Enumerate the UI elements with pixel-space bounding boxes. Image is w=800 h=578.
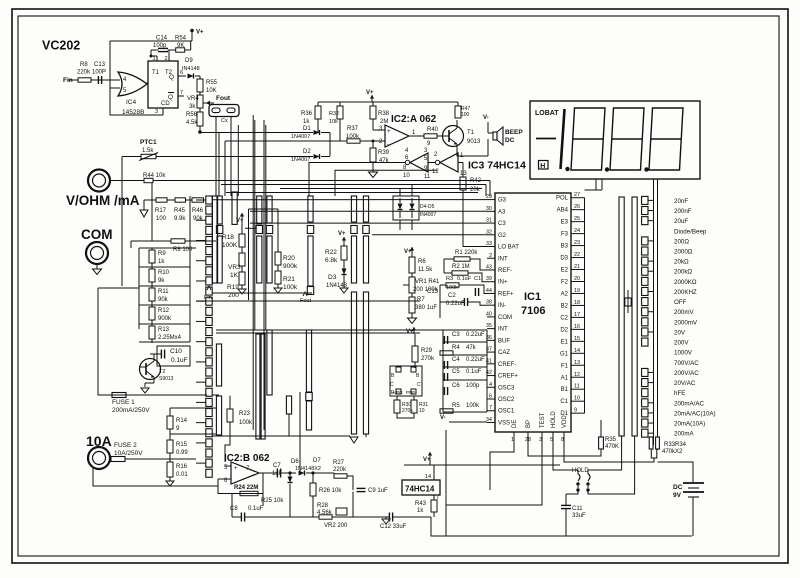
svg-text:100: 100 (461, 112, 470, 118)
svg-text:D9: D9 (185, 58, 193, 64)
svg-text:F2: F2 (561, 279, 569, 285)
svg-text:T1: T1 (467, 130, 475, 136)
svg-text:D3: D3 (328, 274, 337, 281)
svg-text:D3: D3 (560, 256, 568, 262)
svg-text:R27: R27 (333, 460, 345, 466)
svg-text:B3: B3 (561, 244, 569, 250)
svg-text:R19: R19 (227, 284, 239, 291)
svg-text:R7: R7 (417, 297, 425, 303)
svg-text:200mA/250V: 200mA/250V (112, 407, 150, 414)
svg-text:AB4: AB4 (557, 208, 569, 214)
svg-text:6.8k: 6.8k (325, 257, 338, 264)
svg-text:IC3 74HC14: IC3 74HC14 (468, 160, 526, 172)
svg-text:20: 20 (574, 276, 580, 282)
svg-text:hFE: hFE (674, 390, 685, 397)
svg-text:900k: 900k (283, 263, 298, 270)
svg-text:100p: 100p (466, 383, 480, 389)
svg-text:1: 1 (153, 56, 156, 62)
svg-text:1N4007: 1N4007 (291, 157, 310, 163)
svg-text:V+: V+ (404, 249, 412, 255)
svg-text:15: 15 (574, 336, 580, 342)
svg-text:IC2:A 062: IC2:A 062 (391, 114, 437, 125)
svg-text:220k: 220k (77, 70, 91, 76)
svg-text:R8: R8 (80, 62, 88, 68)
svg-text:A1: A1 (561, 375, 569, 381)
svg-text:R5: R5 (452, 403, 460, 409)
svg-text:R46: R46 (192, 208, 204, 214)
svg-text:REF+: REF+ (498, 291, 514, 297)
svg-text:1k: 1k (417, 508, 424, 514)
svg-text:9013: 9013 (467, 139, 481, 145)
svg-text:C8: C8 (230, 506, 238, 512)
svg-text:VR1 R41: VR1 R41 (415, 279, 440, 285)
svg-text:R38: R38 (378, 111, 390, 117)
svg-text:V+: V+ (366, 90, 374, 96)
svg-text:47k: 47k (379, 158, 390, 164)
svg-text:COM: COM (81, 227, 113, 242)
svg-text:C2: C2 (560, 315, 568, 321)
svg-text:R35: R35 (605, 437, 617, 443)
svg-text:A3: A3 (498, 209, 506, 215)
svg-text:COM: COM (498, 315, 512, 321)
svg-text:13: 13 (460, 171, 467, 177)
svg-text:R15: R15 (176, 442, 188, 448)
svg-text:47k: 47k (466, 345, 477, 351)
svg-text:9k: 9k (158, 278, 165, 284)
svg-text:200Ω: 200Ω (674, 238, 689, 245)
svg-text:CREF-: CREF- (498, 362, 516, 368)
svg-text:Diode/Beep: Diode/Beep (674, 228, 707, 235)
svg-text:41: 41 (486, 358, 492, 364)
svg-text:22: 22 (574, 252, 580, 258)
svg-text:11: 11 (574, 384, 580, 390)
svg-text:FUSE 2: FUSE 2 (114, 442, 137, 449)
svg-text:470K: 470K (605, 444, 619, 450)
svg-text:17: 17 (574, 312, 580, 318)
svg-text:90k: 90k (193, 216, 204, 222)
svg-text:11: 11 (424, 174, 431, 180)
svg-text:380 1uF: 380 1uF (415, 305, 437, 311)
svg-text:200KHZ: 200KHZ (674, 289, 697, 296)
svg-text:IC4: IC4 (126, 99, 137, 106)
svg-text:11.5k: 11.5k (418, 267, 433, 273)
svg-text:4.5k: 4.5k (186, 120, 198, 126)
svg-text:R25 10k: R25 10k (261, 498, 284, 504)
svg-text:1000V: 1000V (674, 350, 693, 357)
svg-text:VC202: VC202 (42, 39, 80, 53)
svg-text:C4: C4 (452, 357, 460, 363)
svg-text:0.1uF: 0.1uF (248, 506, 264, 512)
svg-text:PTC1: PTC1 (140, 139, 157, 146)
svg-text:100: 100 (156, 216, 167, 222)
svg-text:2000KΩ: 2000KΩ (674, 279, 697, 286)
svg-text:TEST: TEST (540, 412, 546, 428)
svg-text:74HC14: 74HC14 (405, 485, 435, 494)
svg-text:IN4148: IN4148 (182, 66, 200, 72)
svg-text:24: 24 (574, 228, 580, 234)
svg-text:H: H (540, 163, 545, 170)
svg-text:E1: E1 (561, 339, 569, 345)
svg-text:OSC2: OSC2 (498, 397, 515, 403)
svg-text:20nF: 20nF (674, 198, 688, 205)
svg-text:C3: C3 (452, 332, 460, 338)
svg-text:2000Ω: 2000Ω (674, 249, 693, 256)
svg-text:20V: 20V (674, 329, 686, 336)
svg-text:20uF: 20uF (674, 218, 688, 225)
svg-text:25: 25 (574, 216, 580, 222)
svg-text:C7: C7 (273, 463, 281, 469)
svg-text:C1: C1 (560, 399, 568, 405)
svg-text:C13: C13 (427, 289, 439, 295)
svg-text:R11: R11 (158, 289, 169, 295)
svg-text:0.99: 0.99 (176, 450, 188, 456)
svg-text:100k: 100k (239, 420, 253, 426)
svg-text:42: 42 (486, 370, 492, 376)
svg-text:23: 23 (574, 240, 580, 246)
svg-text:HOLD: HOLD (551, 411, 557, 428)
svg-text:IC1: IC1 (524, 291, 541, 303)
svg-text:G2: G2 (498, 233, 507, 239)
svg-text:R36: R36 (301, 111, 313, 117)
svg-text:7106: 7106 (521, 305, 545, 317)
svg-text:G1: G1 (560, 351, 569, 357)
svg-text:R12: R12 (158, 308, 170, 314)
svg-text:20kΩ: 20kΩ (674, 259, 689, 266)
svg-text:S9013: S9013 (159, 376, 174, 382)
svg-text:1N4007: 1N4007 (291, 134, 310, 140)
svg-text:R14: R14 (176, 418, 188, 424)
svg-text:19: 19 (574, 288, 580, 294)
svg-text:V/OHM /mA: V/OHM /mA (66, 193, 140, 208)
svg-text:R33R34: R33R34 (664, 442, 687, 448)
svg-text:R16: R16 (176, 464, 188, 470)
svg-text:700V/AC: 700V/AC (674, 360, 699, 367)
svg-text:D7: D7 (313, 458, 321, 464)
svg-text:10: 10 (403, 173, 410, 179)
svg-text:A2: A2 (561, 291, 569, 297)
svg-text:200nF: 200nF (674, 208, 692, 215)
svg-text:20mA/AC(10A): 20mA/AC(10A) (674, 410, 716, 417)
svg-text:OSC1: OSC1 (498, 409, 515, 415)
svg-text:10: 10 (419, 408, 425, 414)
svg-text:POL: POL (556, 196, 569, 202)
svg-text:R40: R40 (427, 127, 439, 133)
svg-text:R43: R43 (415, 501, 427, 507)
svg-text:43: 43 (486, 264, 492, 270)
svg-text:V+: V+ (338, 231, 346, 237)
svg-text:40: 40 (486, 311, 492, 317)
svg-text:3k: 3k (189, 104, 196, 110)
svg-text:BP: BP (526, 420, 532, 428)
svg-text:26: 26 (574, 204, 580, 210)
svg-text:470kX2: 470kX2 (662, 449, 683, 455)
svg-text:20V/AC: 20V/AC (674, 380, 696, 387)
svg-text:1k: 1k (303, 119, 310, 125)
svg-text:R9: R9 (158, 251, 166, 257)
svg-text:BEEP: BEEP (505, 129, 523, 136)
svg-text:R22: R22 (325, 249, 337, 256)
svg-text:CD: CD (161, 101, 170, 107)
svg-text:44: 44 (486, 288, 492, 294)
svg-text:DE: DE (512, 420, 518, 428)
svg-text:0.1uF: 0.1uF (466, 369, 482, 375)
svg-text:Q: Q (169, 74, 174, 81)
svg-text:14: 14 (425, 474, 431, 480)
svg-text:IN-: IN- (498, 303, 506, 309)
svg-text:2: 2 (165, 56, 168, 62)
svg-text:14: 14 (574, 348, 580, 354)
svg-text:C3: C3 (498, 221, 506, 227)
svg-text:R2 1M: R2 1M (452, 264, 470, 270)
svg-text:R18: R18 (222, 234, 234, 241)
svg-text:200mA/AC: 200mA/AC (674, 400, 704, 407)
svg-text:9: 9 (574, 408, 577, 414)
svg-text:CAZ: CAZ (498, 350, 510, 356)
svg-text:R55: R55 (206, 80, 218, 86)
svg-text:T2: T2 (159, 369, 165, 375)
svg-text:37: 37 (486, 347, 492, 353)
svg-text:C9 1uF: C9 1uF (368, 488, 388, 494)
svg-text:FUSE 1: FUSE 1 (112, 399, 135, 406)
svg-text:R32: R32 (329, 111, 339, 117)
svg-text:DC: DC (673, 484, 683, 491)
svg-text:R29: R29 (421, 348, 433, 354)
svg-text:R4: R4 (452, 345, 460, 351)
svg-text:B1: B1 (561, 387, 569, 393)
svg-text:R24 22M: R24 22M (234, 485, 258, 491)
svg-text:NPN: NPN (393, 390, 403, 395)
svg-text:20mA(10A): 20mA(10A) (674, 421, 705, 428)
svg-text:C12 33uF: C12 33uF (380, 524, 407, 530)
svg-text:DC: DC (505, 137, 515, 144)
svg-text:IN+: IN+ (498, 280, 508, 286)
svg-text:270k: 270k (421, 356, 435, 362)
svg-text:18: 18 (574, 300, 580, 306)
svg-text:13: 13 (574, 360, 580, 366)
svg-text:LO BAT: LO BAT (498, 245, 519, 251)
svg-text:100k: 100k (466, 403, 480, 409)
svg-text:0.1uF: 0.1uF (171, 357, 188, 364)
svg-text:V+: V+ (196, 30, 204, 36)
svg-text:10K: 10K (206, 88, 217, 94)
svg-text:-: - (387, 142, 389, 148)
svg-text:0.22uF: 0.22uF (466, 332, 485, 338)
svg-text:D6: D6 (291, 459, 299, 465)
svg-text:9.9k: 9.9k (174, 216, 186, 222)
svg-text:33: 33 (486, 241, 492, 247)
svg-text:R1 220k: R1 220k (455, 250, 478, 256)
svg-text:C10: C10 (170, 348, 182, 355)
svg-text:D1: D1 (303, 126, 311, 132)
svg-text:100k: 100k (283, 284, 298, 291)
svg-text:OFF: OFF (674, 299, 687, 306)
svg-text:C5: C5 (452, 369, 460, 375)
svg-text:200V/AC: 200V/AC (674, 370, 699, 377)
svg-text:R54: R54 (175, 36, 187, 42)
svg-text:REF-: REF- (498, 268, 512, 274)
svg-text:3: 3 (155, 109, 158, 115)
svg-text:F1: F1 (561, 363, 569, 369)
svg-text:R56: R56 (186, 112, 198, 118)
svg-text:R26 10k: R26 10k (319, 488, 342, 494)
svg-text:12: 12 (574, 372, 580, 378)
svg-text:36: 36 (486, 335, 492, 341)
svg-text:100k: 100k (446, 285, 458, 291)
svg-text:C11: C11 (572, 506, 583, 512)
svg-text:IN4007: IN4007 (420, 212, 436, 218)
svg-text:R45: R45 (174, 208, 186, 214)
svg-text:7: 7 (489, 405, 492, 411)
svg-text:V-: V- (483, 115, 489, 121)
svg-text:C13: C13 (94, 62, 106, 68)
svg-text:9V: 9V (673, 492, 682, 499)
svg-text:INT: INT (498, 256, 508, 262)
svg-text:CREF+: CREF+ (498, 374, 518, 380)
svg-text:10: 10 (574, 396, 580, 402)
svg-text:2.25Mx4: 2.25Mx4 (158, 335, 182, 341)
svg-text:INT: INT (498, 327, 508, 333)
svg-text:VR2 200: VR2 200 (324, 523, 348, 529)
svg-text:27: 27 (574, 192, 580, 198)
svg-text:35: 35 (486, 323, 492, 329)
svg-text:R37: R37 (347, 126, 359, 132)
svg-text:C1: C1 (474, 276, 481, 282)
svg-text:R21: R21 (283, 276, 295, 283)
svg-text:LOBAT: LOBAT (535, 110, 559, 117)
svg-text:900k: 900k (158, 316, 172, 322)
svg-text:B2: B2 (561, 303, 569, 309)
svg-text:C14: C14 (156, 36, 168, 42)
svg-text:10k: 10k (329, 119, 338, 125)
svg-text:C2: C2 (448, 293, 456, 299)
svg-text:34: 34 (486, 417, 492, 423)
svg-text:BUF: BUF (498, 338, 510, 344)
svg-text:7: 7 (180, 90, 183, 96)
svg-text:100K: 100K (222, 242, 238, 249)
svg-text:33uF: 33uF (572, 513, 586, 519)
svg-text:200kΩ: 200kΩ (674, 269, 692, 276)
svg-text:+: + (387, 129, 391, 135)
svg-text:Cx: Cx (221, 118, 228, 124)
svg-text:C6: C6 (452, 383, 460, 389)
svg-text:1K: 1K (230, 272, 239, 279)
svg-text:200mV: 200mV (674, 309, 694, 316)
svg-text:G3: G3 (498, 198, 507, 204)
svg-text:6: 6 (489, 394, 492, 400)
svg-text:220k: 220k (333, 467, 347, 473)
svg-text:2M: 2M (380, 119, 388, 125)
svg-text:16: 16 (574, 324, 580, 330)
svg-text:C: C (417, 382, 421, 388)
svg-text:OSC3: OSC3 (498, 385, 515, 391)
svg-text:VSS: VSS (498, 420, 510, 426)
svg-text:R13: R13 (158, 327, 170, 333)
svg-text:R10: R10 (158, 270, 170, 276)
svg-text:21: 21 (574, 264, 580, 270)
svg-text:0.1uF: 0.1uF (457, 276, 472, 282)
svg-text:R17: R17 (155, 208, 167, 214)
svg-text:R3: R3 (446, 276, 453, 282)
svg-text:E2: E2 (561, 268, 569, 274)
svg-text:Fout: Fout (216, 95, 231, 102)
svg-text:200V: 200V (674, 340, 689, 347)
svg-text:200mA: 200mA (674, 431, 694, 438)
svg-text:39: 39 (486, 276, 492, 282)
svg-text:R28: R28 (317, 503, 329, 509)
svg-text:1k: 1k (158, 259, 165, 265)
svg-text:R39: R39 (378, 150, 390, 156)
svg-text:D2: D2 (560, 327, 568, 333)
svg-text:1.5k: 1.5k (142, 148, 154, 154)
svg-text:T1: T1 (152, 70, 160, 76)
svg-text:+: + (234, 466, 238, 472)
svg-text:Fin: Fin (204, 295, 212, 301)
svg-text:2000mV: 2000mV (674, 319, 698, 326)
svg-text:0.22uF: 0.22uF (466, 357, 485, 363)
svg-text:HOLD: HOLD (572, 468, 589, 474)
svg-text:VDD: VDD (562, 415, 568, 428)
svg-text:V-: V- (440, 415, 446, 421)
svg-text:E3: E3 (561, 220, 569, 226)
svg-text:4: 4 (489, 382, 492, 388)
svg-text:D2: D2 (303, 149, 311, 155)
svg-text:Q: Q (168, 94, 173, 101)
svg-text:F3: F3 (561, 232, 569, 238)
svg-text:C: C (390, 382, 394, 388)
svg-text:R23: R23 (239, 411, 251, 417)
svg-text:100P: 100P (92, 70, 106, 76)
svg-text:2: 2 (489, 253, 492, 259)
svg-text:R20: R20 (283, 255, 295, 262)
svg-text:0.01: 0.01 (176, 472, 188, 478)
svg-text:90k: 90k (158, 297, 169, 303)
svg-text:PNP: PNP (406, 390, 415, 395)
svg-text:D4-D5: D4-D5 (420, 204, 435, 210)
svg-text:V+: V+ (236, 218, 244, 224)
svg-text:38: 38 (486, 300, 492, 306)
svg-text:R6: R6 (418, 259, 426, 265)
